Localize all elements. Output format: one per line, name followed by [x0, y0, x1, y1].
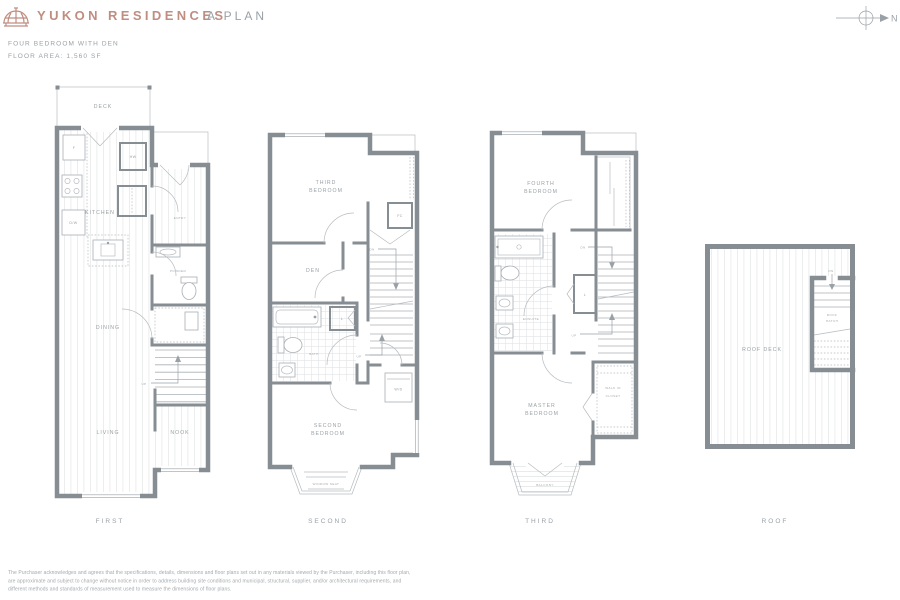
toilet-icon	[278, 337, 302, 353]
room-label-master-1: MASTER	[528, 403, 556, 409]
nook-window	[161, 466, 199, 474]
room-label-fourth-bedroom-2: BEDROOM	[524, 189, 558, 195]
page-title-plan-name: A PLAN	[207, 9, 267, 23]
floor-plan-first: DECK F D/W HW	[38, 84, 213, 504]
furnace-label: FC	[397, 214, 403, 218]
brand-logo-dome-icon	[1, 4, 31, 28]
window-seat-label: WINDOW SEAT	[313, 482, 340, 486]
toilet-icon	[495, 266, 519, 281]
bedroom4-window	[502, 129, 542, 137]
toilet-icon	[181, 277, 197, 300]
plan-area: FLOOR AREA: 1,560 SF	[8, 50, 308, 63]
walk-in-label-2: CLOSET	[606, 394, 621, 398]
entry-porch	[152, 132, 208, 165]
room-label-living: LIVING	[96, 430, 119, 436]
fridge-label: F	[73, 146, 76, 150]
floor-plan-third: BALCONY ENSUITE L	[484, 126, 639, 498]
brand-title: YUKON RESIDENCES	[37, 8, 226, 23]
walk-in-closet: WALK IN CLOSET	[583, 366, 632, 433]
room-label-entry: ENTRY	[174, 216, 186, 220]
floorplan-sheet: YUKON RESIDENCES A PLAN N FOUR BEDROOM W…	[0, 0, 900, 600]
bedroom3-window	[285, 131, 325, 139]
room-label-third-bedroom-2: BEDROOM	[309, 188, 343, 194]
floor-plan-second: WINDOW SEAT L BATH FC	[262, 122, 422, 497]
room-label-kitchen: KITCHEN	[85, 210, 115, 216]
furnace-closet: FC	[388, 203, 412, 228]
washer-dryer-icon: W/D	[385, 373, 412, 402]
bedroom2-window	[413, 420, 421, 453]
stairs-up-label: UP	[571, 334, 576, 338]
window-seat-bay: WINDOW SEAT	[290, 467, 362, 494]
room-label-deck: DECK	[94, 104, 112, 110]
stairs-down-label: DN	[828, 269, 833, 273]
bath-sink-icon	[279, 363, 295, 377]
dishwasher-label: D/W	[69, 221, 77, 225]
plan-type: FOUR BEDROOM WITH DEN	[8, 37, 308, 50]
floor-label-second: SECOND	[268, 517, 388, 525]
hot-water-label: HW	[130, 155, 137, 159]
stove-icon	[62, 175, 82, 197]
shower-icon	[495, 236, 543, 258]
stairs-down-label: DN	[369, 248, 374, 252]
room-label-ensuite: ENSUITE	[523, 317, 539, 321]
stairs-down-label: DN	[580, 246, 585, 250]
floor-plan-roof: ROOF HATCH DN ROOF DECK	[698, 240, 858, 455]
walk-in-label-1: WALK IN	[605, 386, 620, 390]
room-label-second-bedroom-2: BEDROOM	[311, 431, 345, 437]
linen-label: L	[584, 293, 586, 297]
vanity-sink-icon	[156, 247, 180, 257]
plan-summary: FOUR BEDROOM WITH DEN FLOOR AREA: 1,560 …	[8, 37, 308, 62]
linen-label: L	[341, 317, 343, 321]
room-label-master-2: BEDROOM	[525, 411, 559, 417]
roof-hatch-label-2: HATCH	[826, 319, 838, 323]
balcony-bay: BALCONY	[509, 463, 581, 495]
room-label-second-bedroom-1: SECOND	[314, 423, 342, 429]
room-label-third-bedroom-1: THIRD	[316, 180, 337, 186]
living-window	[82, 492, 140, 500]
room-label-nook: NOOK	[170, 430, 189, 436]
room-label-dining: DINING	[96, 325, 120, 331]
legal-disclaimer: The Purchaser acknowledges and agrees th…	[8, 569, 414, 594]
room-label-fourth-bedroom-1: FOURTH	[527, 181, 555, 187]
floor-label-first: FIRST	[50, 517, 170, 525]
room-label-bath: BATH	[309, 352, 319, 356]
room-label-powder: POWDER	[170, 269, 187, 273]
stairs-icon: DN UP	[356, 248, 413, 359]
balcony-label: BALCONY	[536, 483, 554, 487]
stairs-up-label: UP	[356, 355, 361, 359]
stairs-icon: DN UP	[571, 246, 634, 354]
stairs-up-label: UP	[141, 382, 146, 386]
floor-label-third: THIRD	[480, 517, 600, 525]
floor-label-roof: ROOF	[715, 517, 835, 525]
linen-closet: L	[567, 275, 596, 313]
room-label-den: DEN	[306, 268, 320, 274]
room-label-roof-deck: ROOF DECK	[742, 347, 782, 353]
roof-hatch-label-1: ROOF	[827, 313, 838, 317]
washer-dryer-label: W/D	[394, 388, 402, 392]
compass-north-label: N	[891, 14, 898, 24]
bathtub-icon	[273, 307, 321, 327]
north-compass-icon: N	[836, 3, 900, 33]
bedroom4-closet	[596, 157, 630, 230]
